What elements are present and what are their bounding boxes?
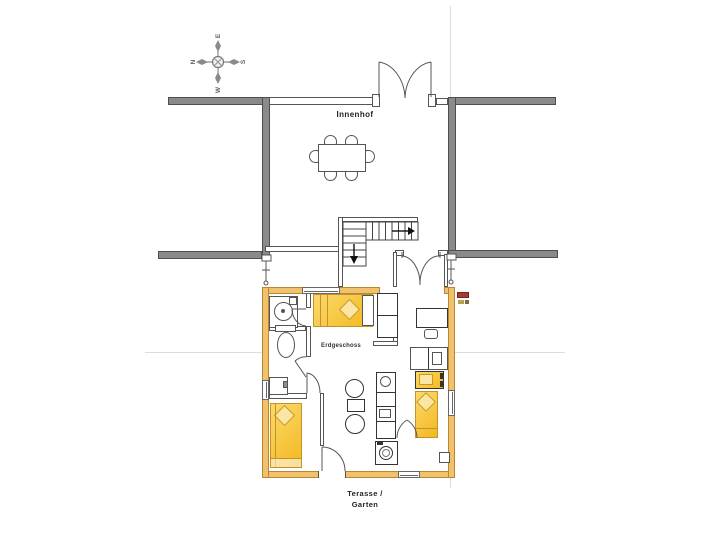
terrace-label-line2: Garten xyxy=(320,499,410,510)
courtyard-label: Innenhof xyxy=(315,110,395,119)
compass-south-label: S xyxy=(240,59,247,64)
staircase xyxy=(343,222,418,266)
compass-west-label: W xyxy=(215,86,222,93)
floor-label: Erdgeschoss xyxy=(306,343,376,349)
terrace-label-line1: Terasse / xyxy=(320,488,410,499)
french-doors xyxy=(379,62,431,98)
column-marker-left xyxy=(262,255,271,285)
column-marker-right xyxy=(447,254,456,284)
compass-east-label: E xyxy=(215,33,222,38)
terrace-label: Terasse / Garten xyxy=(320,488,410,510)
interior-doors xyxy=(292,309,417,471)
compass-icon: E S W N xyxy=(190,33,247,93)
linework-overlay: E S W N xyxy=(0,0,720,540)
vestibule-doors xyxy=(402,252,440,285)
floorplan-canvas: E S W N xyxy=(0,0,720,540)
compass-north-label: N xyxy=(190,59,197,64)
